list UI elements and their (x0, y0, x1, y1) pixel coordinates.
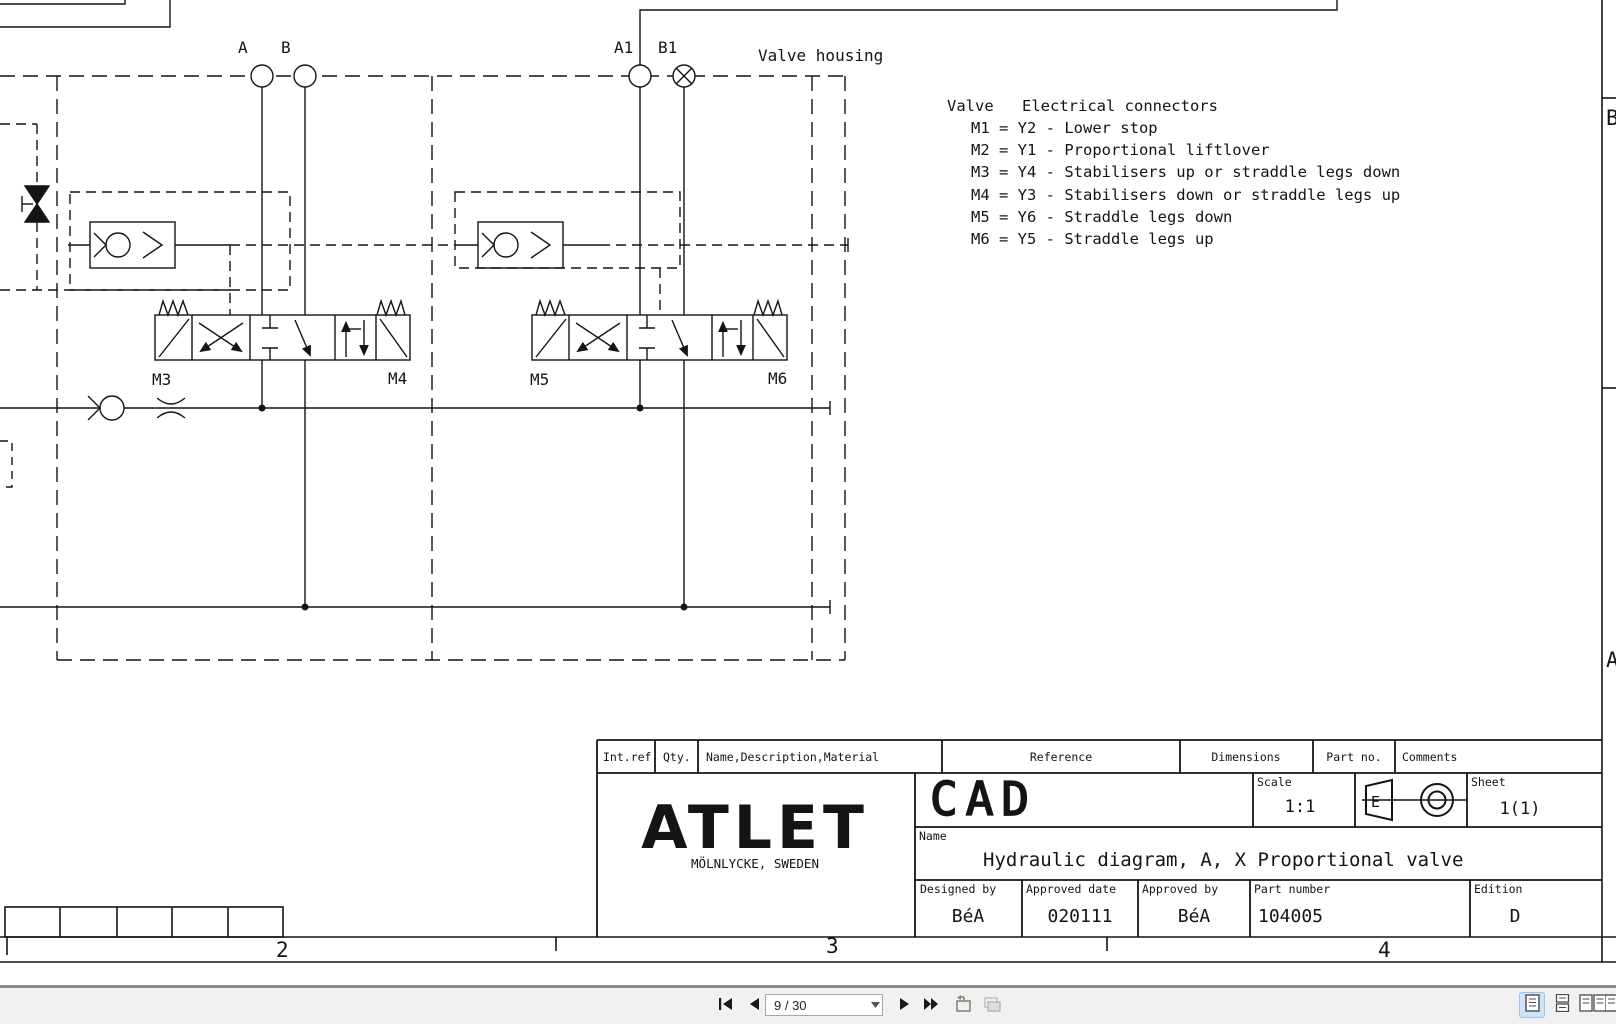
th-comments: Comments (1402, 750, 1457, 764)
part-number-label: Part number (1254, 882, 1330, 896)
legend-row: M6 = Y5 - Straddle legs up (971, 230, 1214, 248)
page-dropdown-caret-icon[interactable] (868, 995, 882, 1015)
legend-row: M2 = Y1 - Proportional liftlover (971, 141, 1270, 159)
port-b-label: B (281, 38, 291, 57)
port-a (251, 65, 273, 87)
feed-line-top (640, 0, 1337, 65)
single-page-view-button[interactable] (1520, 993, 1544, 1017)
projection-letter: E (1371, 793, 1380, 811)
th-part-no: Part no. (1326, 750, 1381, 764)
edition-value: D (1510, 906, 1521, 927)
company-location: MÖLNLYCKE, SWEDEN (691, 855, 819, 871)
cad-label: CAD (930, 772, 1037, 826)
pilot-line (68, 192, 848, 315)
port-b1-plugged (673, 65, 695, 87)
facing-pages-view-icon (1579, 994, 1607, 1016)
legend-row: M4 = Y3 - Stabilisers down or straddle l… (971, 186, 1400, 204)
tank-line (0, 396, 830, 420)
zone-num-2: 2 (276, 938, 289, 962)
first-page-icon (717, 996, 735, 1015)
single-page-view-icon (1525, 994, 1540, 1016)
zone-ref-b: B (1606, 106, 1616, 130)
th-reference: Reference (1030, 750, 1092, 764)
continuous-view-button[interactable] (1550, 993, 1574, 1017)
projection-symbol: E (1362, 780, 1466, 820)
zone-num-4: 4 (1378, 938, 1391, 962)
th-intref: Int.ref (603, 750, 651, 764)
drawing-name-value: Hydraulic diagram, A, X Proportional val… (983, 849, 1463, 871)
zone-num-3: 3 (826, 934, 839, 958)
pdf-viewer-window: { "drawing": { "housing_label": "Valve h… (0, 0, 1616, 1024)
approved-date-value: 020111 (1047, 906, 1112, 927)
title-block: Int.ref Qty. Name,Description,Material R… (597, 740, 1602, 937)
left-edge-bracket (0, 441, 12, 487)
next-page-icon (898, 996, 912, 1015)
designed-by-label: Designed by (920, 882, 996, 896)
cutoff-component-top-left (0, 0, 170, 27)
legend-row: M3 = Y4 - Stabilisers up or straddle leg… (971, 163, 1400, 181)
valve-housing-label: Valve housing (758, 46, 883, 65)
last-page-button[interactable] (920, 993, 944, 1017)
sheet-label: Sheet (1471, 775, 1506, 789)
facing-pages-view-button[interactable] (1578, 993, 1608, 1017)
previous-page-icon (747, 996, 761, 1015)
scale-label: Scale (1257, 775, 1292, 789)
th-name-desc: Name,Description,Material (706, 750, 879, 764)
port-a1-label: A1 (614, 38, 633, 57)
edition-label: Edition (1474, 882, 1522, 896)
approved-by-value: BéA (1178, 906, 1211, 927)
port-a-label: A (238, 38, 248, 57)
legend-title-valve: Valve (947, 97, 994, 115)
previous-view-button[interactable] (952, 993, 976, 1017)
valve-m3-label: M3 (152, 370, 171, 389)
legend-row: M5 = Y6 - Straddle legs down (971, 208, 1232, 226)
port-lines (262, 87, 684, 607)
connector-legend: Valve Electrical connectors M1 = Y2 - Lo… (947, 97, 1400, 248)
th-qty: Qty. (663, 750, 691, 764)
return-line (0, 600, 830, 614)
page-indicator[interactable]: 9 / 30 (774, 998, 868, 1013)
first-page-button[interactable] (714, 993, 738, 1017)
zone-ref-a: A (1606, 648, 1616, 672)
valve-housing-boundary (0, 76, 845, 660)
valve-m6-label: M6 (768, 369, 787, 388)
previous-page-button[interactable] (742, 993, 766, 1017)
part-number-value: 104005 (1258, 906, 1323, 927)
legend-row: M1 = Y2 - Lower stop (971, 119, 1158, 137)
continuous-view-icon (1555, 994, 1570, 1016)
port-a1 (629, 65, 651, 87)
facing-continuous-view-button[interactable] (1606, 993, 1616, 1017)
valve-m5-label: M5 (530, 370, 549, 389)
valve-m3-m4 (155, 301, 410, 360)
sheet-value: 1(1) (1500, 799, 1541, 819)
legend-title-connectors: Electrical connectors (1022, 97, 1218, 115)
last-page-icon (922, 996, 942, 1015)
next-view-icon (982, 995, 1002, 1016)
approved-date-label: Approved date (1026, 882, 1116, 896)
revision-strip (5, 907, 283, 937)
previous-view-icon (954, 995, 974, 1016)
facing-continuous-view-icon (1606, 994, 1616, 1016)
scale-value: 1:1 (1285, 797, 1316, 817)
valve-m4-label: M4 (388, 369, 407, 388)
th-dimensions: Dimensions (1211, 750, 1280, 764)
next-page-button[interactable] (893, 993, 917, 1017)
next-view-button[interactable] (980, 993, 1004, 1017)
shutoff-valve-branch (0, 124, 230, 290)
approved-by-label: Approved by (1142, 882, 1218, 896)
name-label: Name (919, 829, 947, 843)
port-b (294, 65, 316, 87)
company-logo: ATLET MÖLNLYCKE, SWEDEN (641, 793, 869, 871)
viewer-toolbar: 9 / 30 (0, 988, 1616, 1024)
port-b1-label: B1 (658, 38, 677, 57)
company-logo-text: ATLET (641, 793, 869, 863)
page-number-combobox[interactable]: 9 / 30 (765, 994, 883, 1016)
hydraulic-diagram-page: A B A1 B1 Valve housing M3 M4 M5 M6 Valv… (0, 0, 1616, 986)
designed-by-value: BéA (952, 906, 985, 927)
